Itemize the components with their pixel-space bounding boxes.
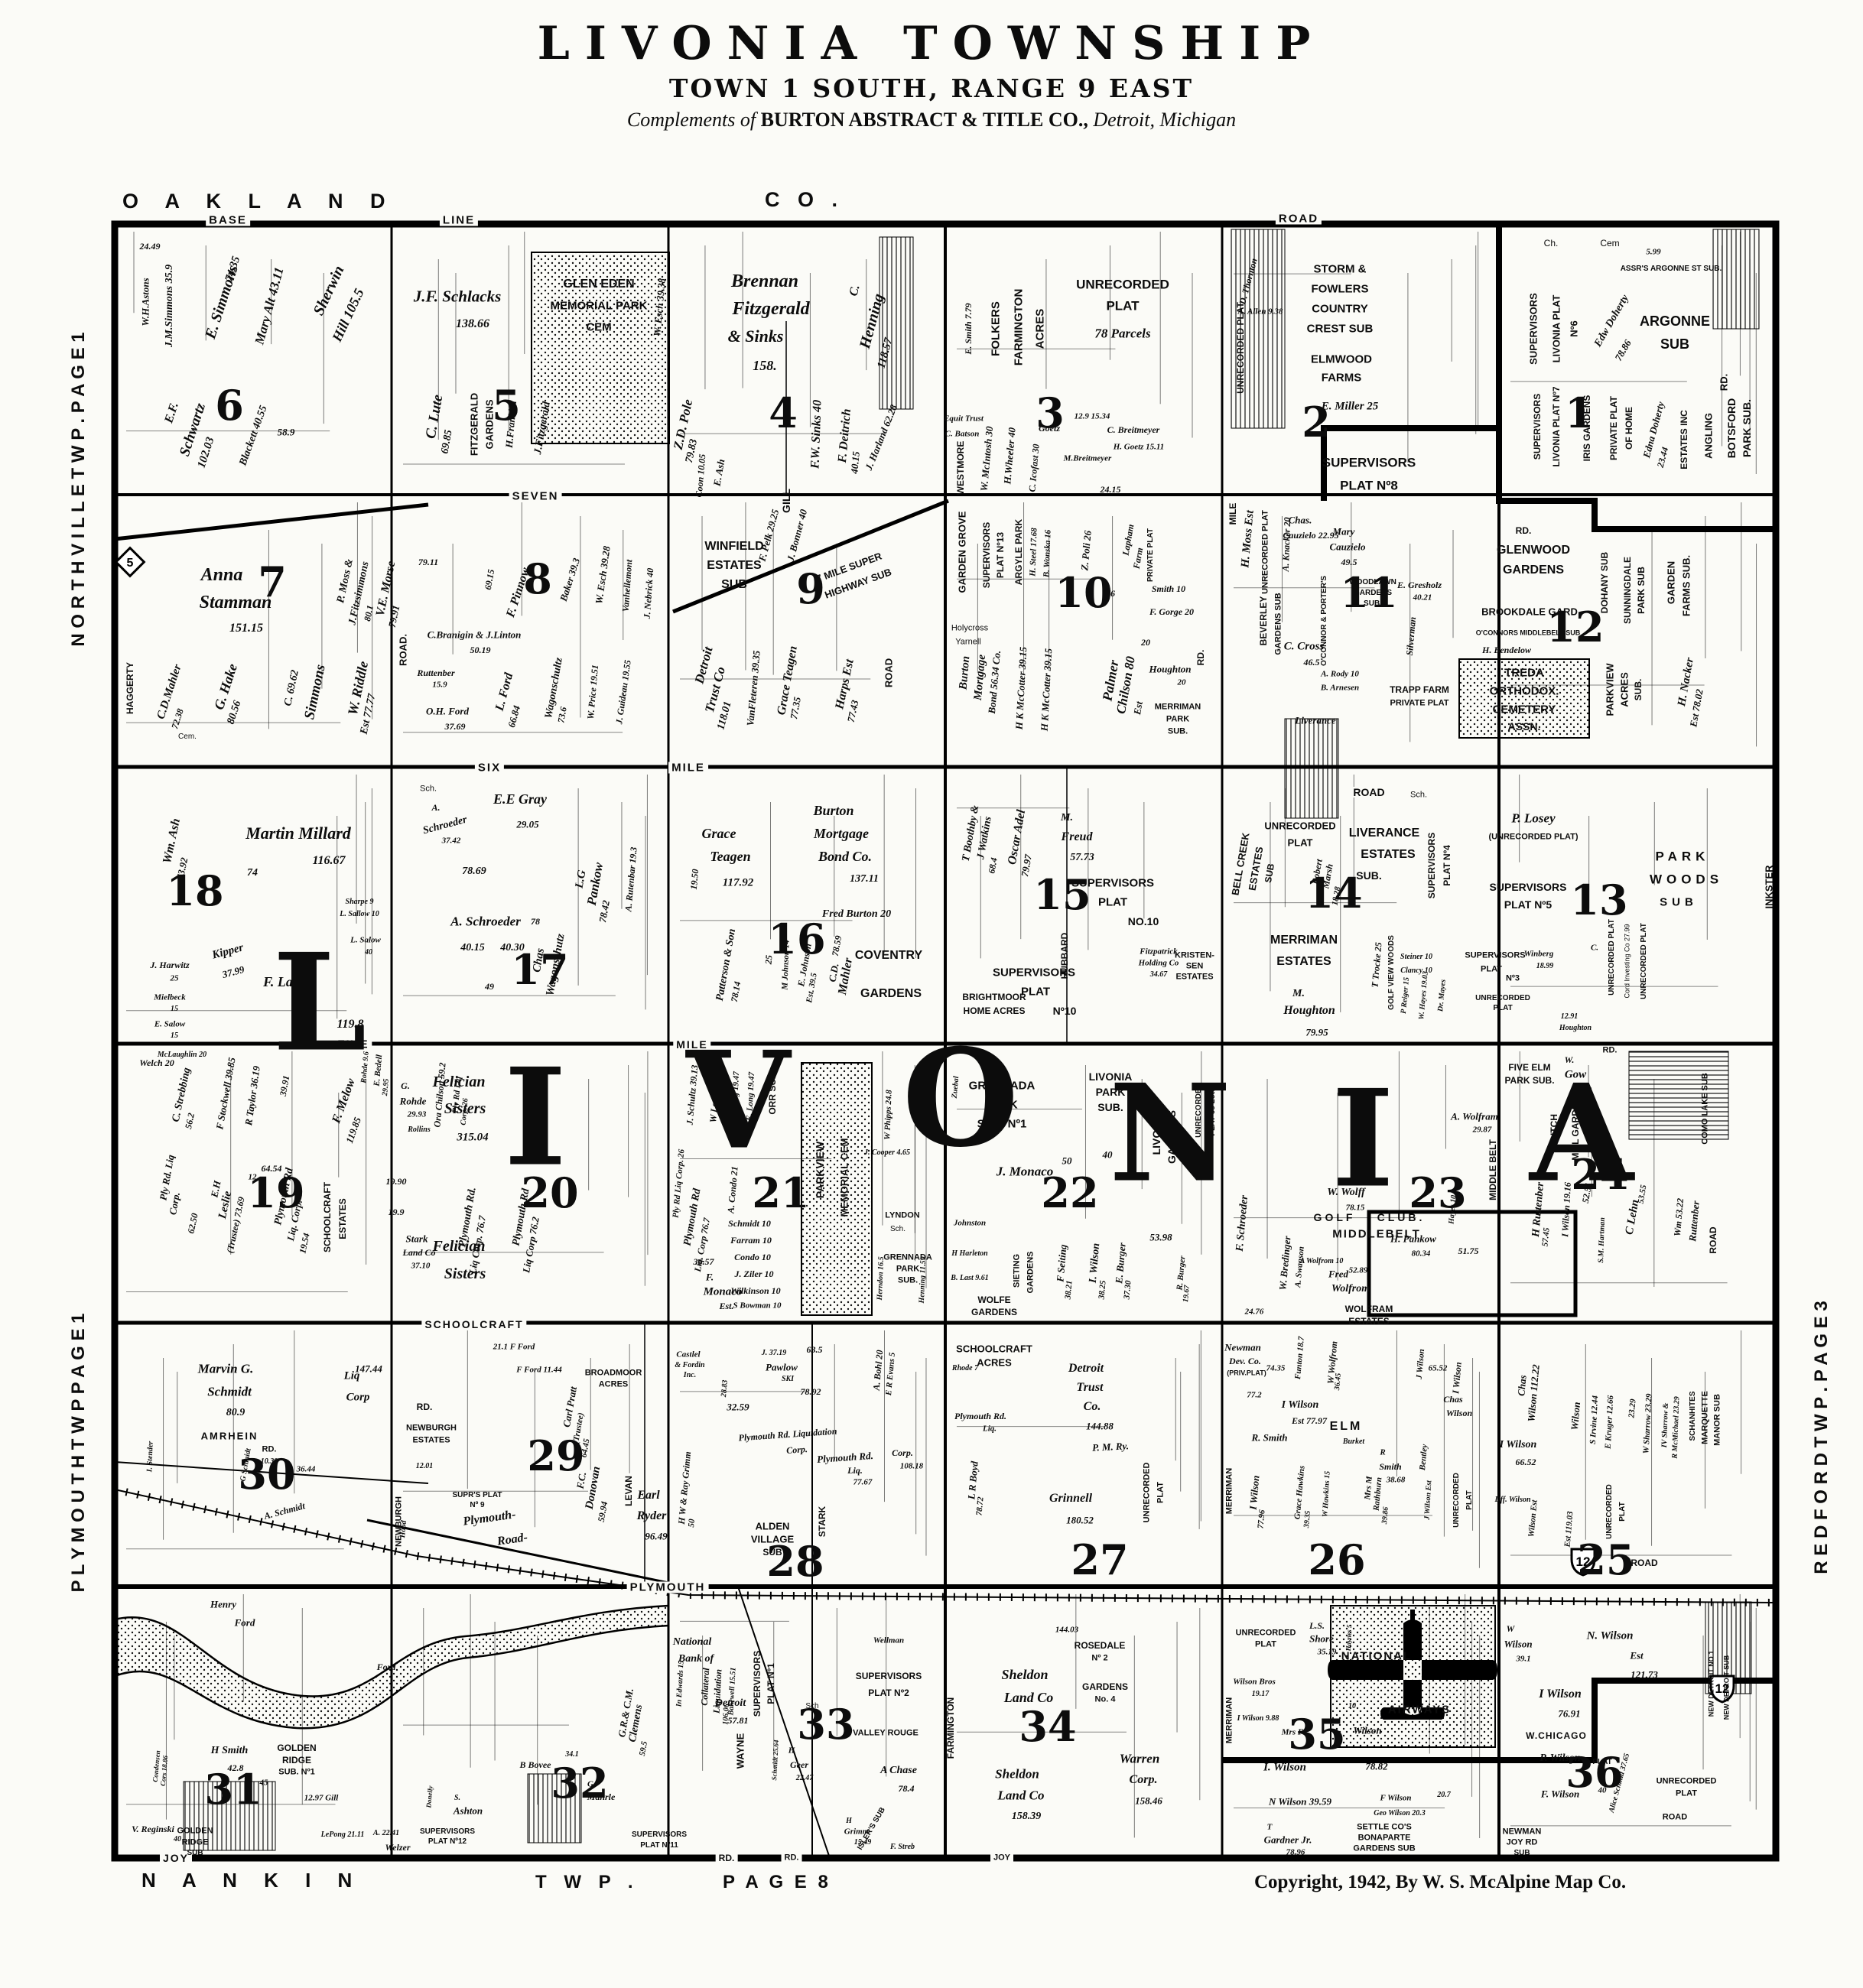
subdivision-label: CREST SUB <box>1307 323 1374 335</box>
subdivision-label: BASE <box>206 215 250 226</box>
subdivision-label: SUB. <box>1168 728 1188 736</box>
subdivision-label: HOME ACRES <box>964 1006 1026 1015</box>
subdivision-label: GARDENS <box>1503 564 1564 577</box>
parcel-label: I Wilson <box>1500 1440 1537 1450</box>
parcel-label: 5.99 <box>1646 248 1660 257</box>
subdivision-label: BROADMOOR <box>585 1369 642 1378</box>
subdivision-label: HAGGERTY <box>125 662 135 714</box>
parcel-label: 37.69 <box>445 722 466 731</box>
subdivision-label: RD. <box>1600 1047 1621 1055</box>
parcel-label: 158. <box>753 359 777 372</box>
section-number-32: 32 <box>551 1759 608 1808</box>
subdivision-label: SCHOOLCRAFT <box>323 1182 332 1252</box>
parcel-label: Co. <box>1084 1401 1101 1413</box>
subdivision-label: BOTSFORD <box>1726 398 1737 459</box>
route-5-number: 5 <box>127 557 134 570</box>
subdivision-label: NEWBURGH <box>406 1424 457 1433</box>
parcel-label: Dff. Wilson <box>1494 1496 1530 1504</box>
subdivision-label: BONAPARTE <box>1358 1834 1411 1843</box>
subdivision-label: SCHOOLCRAFT <box>956 1344 1032 1354</box>
parcel-label: Gardner Jr. <box>1264 1835 1312 1845</box>
parcel-label: G. <box>401 1081 410 1090</box>
parcel-label: IV Sharrow & <box>1661 1402 1670 1447</box>
subdivision-label: JOY RD <box>1507 1839 1538 1847</box>
parcel-label: Liq. <box>983 1425 997 1434</box>
parcel-label: Stark <box>406 1234 428 1244</box>
subdivision-label: GARDEN <box>1666 561 1676 604</box>
parcel-label: C. Batson <box>945 430 980 439</box>
section-number-14: 14 <box>1305 869 1362 918</box>
subdivision-label: MIDDLE BELT <box>1488 1139 1497 1200</box>
parcel-label: 36.57 <box>694 1257 714 1266</box>
subdivision-label: PRIVATE PLAT <box>1147 528 1155 582</box>
subdivision-label: UNRECORDED <box>1475 995 1530 1002</box>
parcel-label: 34.67 <box>1150 971 1168 979</box>
subdivision-label: PLAT <box>1255 1641 1276 1649</box>
subdivision-label: PLAT Nº11 <box>640 1842 678 1850</box>
parcel-label: 52.89 <box>1349 1267 1368 1275</box>
subdivision-label: PARKVIEW <box>1605 663 1615 716</box>
parcel-label: Plymouth Rd. <box>954 1411 1006 1421</box>
parcel-label: 12.91 <box>1561 1013 1579 1021</box>
parcel-label: 78.92 <box>801 1387 821 1396</box>
parcel-label: H <box>788 1747 795 1756</box>
parcel-label: Sharpe 9 <box>346 898 374 906</box>
parcel-label: Teagen <box>710 849 750 863</box>
parcel-label: H. Bendelow <box>1482 645 1531 655</box>
parcel-label: Smith 10 <box>1152 584 1185 593</box>
parcel-label: Houghton <box>1149 664 1192 674</box>
parcel-label: 78 <box>531 917 540 926</box>
township-name-letter: I <box>504 1040 567 1197</box>
section-number-28: 28 <box>766 1537 824 1586</box>
parcel-label: I Wilson <box>1282 1400 1319 1411</box>
parcel-label: A. Knacker 20 <box>1281 517 1292 571</box>
parcel-label: Burton <box>813 804 853 817</box>
subdivision-label: FARMS SUB. <box>1682 555 1692 616</box>
parcel-label: 50 <box>688 1519 697 1528</box>
subdivision-label: UNRECORDED PLAT <box>1236 302 1245 394</box>
subdivision-label: MERRIMAN <box>1226 1468 1234 1515</box>
parcel-label: Corp. <box>786 1444 808 1455</box>
parcel-label: 49 <box>485 982 494 991</box>
parcel-label: 65.52 <box>1429 1365 1448 1373</box>
parcel-label: Wilson <box>1504 1639 1532 1649</box>
parcel-label: 57.73 <box>1070 853 1094 863</box>
subdivision-label: SEN <box>1186 963 1204 971</box>
subdivision-label: GARDENS <box>860 988 922 1000</box>
parcel-label: Warren <box>1120 1752 1160 1765</box>
parcel-label: Ashton <box>454 1806 483 1816</box>
subdivision-label: LIVONIA PLAT Nº7 <box>1552 386 1561 466</box>
parcel-label: 19.17 <box>1252 1691 1270 1698</box>
parcel-label: I Wilson 9.88 <box>1237 1715 1279 1723</box>
parcel-label: Schmidt 10 <box>728 1219 771 1228</box>
parcel-label: 38.25 <box>1097 1280 1107 1300</box>
township-name-letter: O <box>902 1021 1019 1178</box>
parcel-label: 158.39 <box>1012 1811 1042 1822</box>
parcel-label: A Chase <box>880 1765 917 1776</box>
parcel-label: 19.90 <box>386 1177 407 1186</box>
township-name-letter: V <box>686 1023 790 1180</box>
parcel-label: 40.15 <box>849 451 860 474</box>
parcel-label: 78.4 <box>899 1784 915 1793</box>
parcel-label: M.Breitmeyer <box>1064 455 1112 463</box>
platted-strip <box>1713 229 1759 329</box>
subdivision-label: SEVEN <box>509 491 562 502</box>
parcel-label: S Bowman 10 <box>733 1302 782 1311</box>
parcel-label: Grimm <box>844 1828 869 1837</box>
subdivision-label: NEW DETROIT SUB <box>1724 1655 1731 1720</box>
subdivision-label: SUB. Nº1 <box>278 1769 314 1777</box>
subdivision-label: NEWMAN <box>1503 1828 1542 1837</box>
section-number-16: 16 <box>768 914 825 963</box>
subdivision-label: SUPERVISORS <box>1490 882 1567 892</box>
subdivision-label: PLAT Nº1 <box>766 1663 775 1704</box>
parcel-label: 18.99 <box>1536 963 1554 970</box>
subdivision-label: SCHANHITES <box>1689 1391 1697 1441</box>
parcel-label: Henry <box>210 1600 236 1610</box>
subdivision-label: CEMETERY <box>1493 704 1556 716</box>
subdivision-label: PLAT <box>1106 300 1139 313</box>
road-line <box>367 1520 668 1583</box>
parcel-label: Pawlow <box>766 1363 798 1372</box>
parcel-label: F.W. Sinks 40 <box>809 400 824 469</box>
parcel-label: 68.4 <box>987 857 998 875</box>
parcel-label: 46.5 <box>1304 658 1320 667</box>
subdivision-label: SUPERVISORS <box>993 967 1075 979</box>
subdivision-label: ALDEN <box>756 1522 790 1532</box>
parcel-label: 37.10 <box>411 1262 431 1271</box>
parcel-label: W Phipps 24.8 <box>883 1090 893 1140</box>
subdivision-label: PARK SUB <box>1637 567 1646 614</box>
subdivision-label: SUPERVISORS <box>856 1671 922 1681</box>
subdivision-label: MARQUETTE <box>1702 1391 1710 1444</box>
subdivision-label: UNRECORDED <box>1143 1463 1152 1523</box>
subdivision-label: AMRHEIN <box>201 1431 258 1441</box>
section-number-8: 8 <box>523 554 552 603</box>
subdivision-label: ROSEDALE <box>1075 1641 1126 1650</box>
parcel-label: 20 <box>1178 679 1186 687</box>
parcel-label: 34.1 <box>565 1751 579 1759</box>
subdivision-label: ACRES <box>1620 672 1630 707</box>
parcel-label: H <box>846 1817 852 1825</box>
subdivision-label: ACRES <box>599 1381 629 1389</box>
parcel-label: 180.52 <box>1066 1515 1094 1525</box>
parcel-label: 78.82 <box>1365 1762 1387 1772</box>
parcel-label: 12.01 <box>416 1463 434 1470</box>
subdivision-label: AIRWAYS <box>1388 1704 1451 1716</box>
parcel-label: A. Rody 10 <box>1321 671 1359 679</box>
section-number-18: 18 <box>166 866 223 915</box>
parcel-label: M. <box>1061 813 1073 823</box>
section-number-11: 11 <box>1340 568 1397 617</box>
subdivision-label: SUPERVISORS <box>1529 293 1539 365</box>
subdivision-label: GLENWOOD <box>1497 544 1570 557</box>
subdivision-label: Nº10 <box>1053 1005 1077 1016</box>
parcel-label: Ch. <box>1544 239 1559 248</box>
subdivision-label: RD. <box>1196 650 1205 666</box>
parcel-label: Marvin G. <box>198 1363 254 1376</box>
section-number-27: 27 <box>1071 1535 1128 1584</box>
parcel-label: 36.45 <box>1334 1372 1343 1390</box>
parcel-label: E.E Gray <box>493 792 547 806</box>
parcel-label: 158.46 <box>1135 1796 1162 1806</box>
parcel-label: C. Cross <box>1284 642 1325 653</box>
parcel-label: Cem. <box>178 733 197 741</box>
parcel-label: C. <box>1591 944 1598 953</box>
subdivision-label: STORM & <box>1314 264 1367 275</box>
parcel-label: 19.67 <box>1182 1285 1192 1302</box>
parcel-label: Condo 10 <box>734 1252 771 1262</box>
parcel-label: 138.66 <box>456 318 489 330</box>
parcel-label: 32.59 <box>727 1402 749 1412</box>
parcel-label: Land Co <box>402 1248 435 1257</box>
subdivision-label: ESTATES <box>1361 849 1415 861</box>
parcel-label: F. Gorge 20 <box>1149 607 1194 616</box>
subdivision-label: Nº 9 <box>470 1502 484 1509</box>
township-name-letter: A <box>1530 1056 1634 1213</box>
parcel-label: 78.69 <box>462 866 486 877</box>
parcel-label: Land Co <box>998 1789 1045 1802</box>
subdivision-label: GOLDEN <box>277 1743 316 1752</box>
parcel-label: 77.67 <box>853 1479 873 1487</box>
parcel-label: Sch. <box>1410 791 1427 800</box>
subdivision-label: W.CHICAGO <box>1523 1731 1590 1740</box>
parcel-label: Wilson <box>1569 1402 1582 1431</box>
parcel-label: Cem <box>1600 239 1619 248</box>
parcel-label: Fred Burton 20 <box>822 909 891 920</box>
parcel-label: Steiner 10 <box>1400 953 1432 961</box>
parcel-label: Sch. <box>890 1226 905 1233</box>
subdivision-label: PARK <box>1166 716 1189 724</box>
parcel-label: H. Steel 17.68 <box>1029 528 1039 577</box>
plat-map-page: LIVONIA TOWNSHIP TOWN 1 SOUTH, RANGE 9 E… <box>0 0 1863 1988</box>
parcel-label: & Sinks <box>728 328 784 345</box>
subdivision-label: PARK SUB. <box>1741 399 1752 457</box>
subdivision-label: GARDENS <box>1027 1251 1036 1293</box>
subdivision-label: SUPERVISORS <box>982 522 991 588</box>
road-line <box>115 505 428 539</box>
parcel-label: Houghton <box>1283 1005 1335 1017</box>
township-name-letter: I <box>1331 1061 1394 1218</box>
subdivision-label: PLAT Nº12 <box>428 1838 467 1846</box>
subdivision-label: SUPERVISORS <box>753 1651 762 1717</box>
section-number-12: 12 <box>1546 603 1604 651</box>
subdivision-label: SIX <box>475 762 504 774</box>
parcel-label: R <box>1380 1449 1385 1457</box>
parcel-label: S.M. Hartman <box>1598 1217 1607 1263</box>
parcel-label: Sheldon <box>995 1768 1039 1781</box>
parcel-label: H. Pankow <box>1390 1234 1436 1244</box>
parcel-label: Herndon 16.5 <box>876 1256 886 1301</box>
parcel-label: A. 22.41 <box>373 1830 399 1837</box>
parcel-label: F. <box>706 1272 714 1282</box>
subdivision-label: TRAPP FARM <box>1390 685 1449 694</box>
subdivision-label: VALLEY ROUGE <box>853 1730 918 1738</box>
parcel-label: 80.9 <box>226 1408 245 1418</box>
subdivision-label: WINFIELD <box>704 541 763 553</box>
subdivision-label: ACRES <box>977 1358 1012 1368</box>
parcel-label: N Wilson 39.59 <box>1269 1797 1331 1807</box>
parcel-label: 29.05 <box>516 820 538 830</box>
parcel-label: A. <box>431 803 440 812</box>
parcel-label: O.H. Ford <box>426 707 469 716</box>
parcel-label: I Wilson <box>1248 1475 1261 1510</box>
subdivision-label: (UNRECORDED PLAT) <box>1488 833 1578 842</box>
parcel-label: 117.92 <box>723 878 753 889</box>
subdivision-label: GARDENS <box>1082 1682 1128 1691</box>
platted-strip <box>879 237 913 409</box>
parcel-label: 116.67 <box>312 855 345 867</box>
parcel-label: 49.5 <box>1341 557 1357 567</box>
parcel-label: Corp. <box>1130 1774 1158 1786</box>
parcel-label: Welch 20 <box>139 1058 174 1067</box>
subdivision-label: NO.10 <box>1128 916 1159 927</box>
subdivision-label: SUB <box>721 579 747 591</box>
subdivision-label: ESTATES <box>707 560 761 572</box>
subdivision-label: GOLDEN <box>177 1827 213 1836</box>
parcel-label: 10 <box>1348 1703 1356 1710</box>
parcel-label: 24.15 <box>1101 485 1121 494</box>
subdivision-label: WESTMORE <box>956 441 965 495</box>
parcel-label: M. <box>1292 989 1305 999</box>
parcel-label: 77.2 <box>1247 1392 1261 1400</box>
platted-strip <box>1629 1051 1728 1139</box>
subdivision-label: SUB <box>1660 337 1689 351</box>
subdivision-label: RIDGE <box>182 1839 209 1847</box>
parcel-label: 66.52 <box>1516 1457 1536 1467</box>
parcel-label: 79.95 <box>1305 1028 1328 1038</box>
subdivision-label: FITZGERALD <box>470 393 480 456</box>
parcel-label: 37.30 <box>1123 1280 1133 1300</box>
subdivision-label: GARDENS SUB <box>1275 593 1283 655</box>
parcel-label: I. Stender <box>146 1441 154 1473</box>
parcel-label: P. Losey <box>1511 812 1555 825</box>
parcel-label: 40.21 <box>1413 594 1432 603</box>
parcel-label: Earl <box>637 1489 659 1502</box>
parcel-label: F Wilson <box>1380 1795 1411 1803</box>
subdivision-label: PRIVATE PLAT <box>1390 700 1449 708</box>
subdivision-label: SUB <box>187 1850 203 1857</box>
parcel-label: Liverance <box>1295 716 1335 726</box>
parcel-label: Detroit <box>1068 1363 1104 1375</box>
section-number-17: 17 <box>511 945 568 994</box>
section-number-31: 31 <box>204 1765 262 1814</box>
subdivision-label: UNRECORDED <box>1264 821 1335 831</box>
parcel-label: B. Arnesen <box>1321 684 1359 693</box>
subdivision-label: MEMORIAL PARK <box>551 300 648 312</box>
section-number-25: 25 <box>1577 1535 1634 1584</box>
subdivision-label: PLAT <box>1619 1502 1627 1521</box>
parcel-label: Dev. Co. <box>1229 1356 1261 1366</box>
parcel-label: 77.96 <box>1257 1509 1266 1529</box>
parcel-label: Bond Co. <box>818 849 872 863</box>
parcel-label: Liq. <box>847 1466 863 1475</box>
parcel-label: Fred <box>1328 1269 1348 1279</box>
subdivision-label: BEVERLEY <box>1259 596 1268 646</box>
parcel-label: H Smith <box>211 1746 249 1756</box>
parcel-label: Mary <box>1333 527 1355 537</box>
section-number-7: 7 <box>258 557 287 606</box>
subdivision-label: GARDENS SUB <box>1353 1845 1415 1853</box>
subdivision-label: ASSN. <box>1508 721 1541 732</box>
parcel-label: 137.11 <box>850 874 879 885</box>
parcel-label: Wolfrom <box>1331 1284 1370 1294</box>
subdivision-label: SUB. <box>898 1277 918 1285</box>
parcel-label: 15.9 <box>432 681 447 690</box>
section-number-36: 36 <box>1566 1748 1623 1797</box>
parcel-label: LePong 21.11 <box>321 1831 365 1839</box>
subdivision-label: SUPERVISORS <box>420 1828 475 1836</box>
section-number-26: 26 <box>1308 1535 1365 1584</box>
parcel-label: Geer <box>790 1760 808 1769</box>
parcel-label: 76.91 <box>1558 1709 1580 1719</box>
parcel-label: Ford <box>235 1618 255 1628</box>
parcel-label: Yarnell <box>955 638 980 647</box>
parcel-label: Smith <box>1379 1462 1401 1471</box>
parcel-label: Johnston <box>954 1220 986 1228</box>
parcel-label: W <box>1507 1624 1515 1633</box>
parcel-label: Sch. <box>420 785 437 794</box>
parcel-label: E. Smith 7.79 <box>964 303 973 354</box>
subdivision-label: LIVONIA PLAT <box>1552 295 1562 363</box>
parcel-label: C.Branigin & J.Linton <box>428 630 522 640</box>
section-number-15: 15 <box>1033 870 1091 919</box>
subdivision-label: ESTATES <box>412 1437 450 1445</box>
parcel-label: 108.18 <box>900 1463 923 1471</box>
subdivision-label: SUPERVISORS <box>632 1831 687 1839</box>
parcel-label: Schmidt <box>207 1385 252 1398</box>
section-number-3: 3 <box>1036 388 1065 437</box>
parcel-label: Burket <box>1343 1438 1364 1446</box>
subdivision-label: RD. <box>1719 374 1729 391</box>
subdivision-label: (PRIV.PLAT) <box>1227 1370 1266 1377</box>
parcel-label: 24.76 <box>1245 1308 1264 1317</box>
parcel-label: 15.49 <box>854 1839 872 1847</box>
subdivision-label: Nº6 <box>1569 320 1579 336</box>
parcel-label: Winberg <box>1524 950 1554 959</box>
parcel-label: 21.1 F Ford <box>493 1343 535 1352</box>
subdivision-label: ARGONNE <box>1640 314 1710 328</box>
township-name-letter: L <box>272 925 366 1082</box>
subdivision-label: ESTATES <box>1276 956 1331 968</box>
subdivision-label: ESTATES <box>1348 1317 1390 1326</box>
subdivision-label: WOLFE <box>977 1295 1010 1304</box>
subdivision-label: PLAT <box>1288 838 1313 848</box>
parcel-label: Mortgage <box>814 827 869 840</box>
section-number-2: 2 <box>1302 398 1331 447</box>
parcel-label: 36.44 <box>297 1466 316 1474</box>
subdivision-label: UNRECORDED <box>1453 1473 1461 1528</box>
parcel-label: Welzer <box>385 1843 410 1852</box>
parcel-label: Chas <box>1443 1395 1462 1404</box>
subdivision-label: CEM <box>586 322 611 333</box>
parcel-label: Brennan <box>731 272 798 291</box>
parcel-label: Rohde <box>400 1096 427 1106</box>
parcel-label: Ryder <box>637 1510 667 1522</box>
parcel-label: Haynes 5 <box>1345 1624 1353 1651</box>
subdivision-label: PRIVATE PLAT <box>1609 396 1618 460</box>
subdivision-label: SUPR'S PLAT <box>453 1492 502 1499</box>
subdivision-label: PLAT Nº13 <box>996 532 1005 578</box>
parcel-label: Houghton <box>1559 1025 1592 1032</box>
stipple-area <box>801 1063 872 1315</box>
parcel-label: Ruttenber <box>417 668 454 677</box>
parcel-label: Cord Investing Co 27.99 <box>1624 924 1631 998</box>
section-number-23: 23 <box>1409 1168 1466 1217</box>
parcel-label: 20 <box>1141 638 1150 647</box>
